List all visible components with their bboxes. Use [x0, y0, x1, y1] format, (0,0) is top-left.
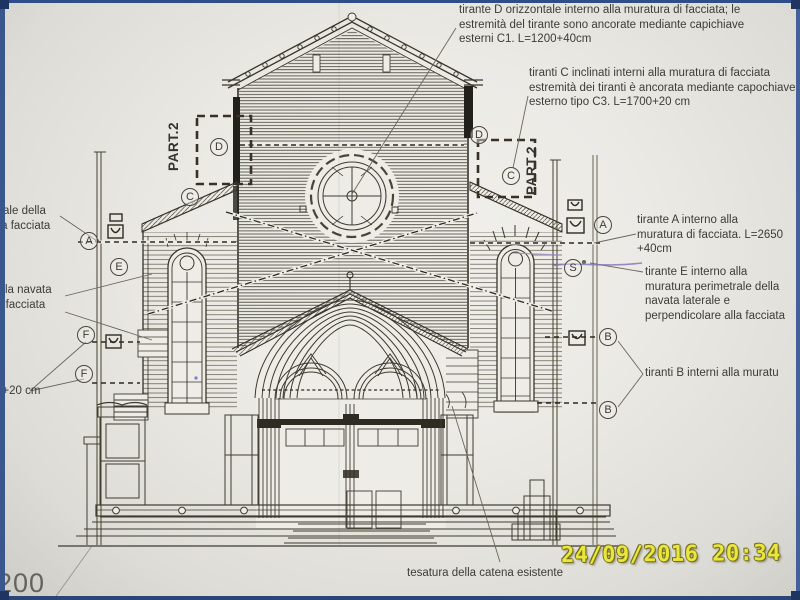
- part2-label-right: PART.2: [524, 146, 539, 195]
- marker-b-lower: B: [599, 401, 617, 419]
- marker-f-lower: F: [75, 365, 93, 383]
- marker-a-left: A: [80, 232, 98, 250]
- annotation-tesatura: tesatura della catena esistente: [407, 566, 563, 581]
- annotation-tirante-a: tirante A interno alla muratura di facci…: [637, 213, 783, 257]
- marker-d-right: D: [470, 126, 488, 144]
- photo-of-technical-drawing: { "photo": { "date_stamp": "24/09/2016 2…: [0, 0, 800, 600]
- photo-corner: [0, 591, 9, 600]
- marker-e-left: E: [110, 258, 128, 276]
- marker-c-right: C: [502, 167, 520, 185]
- paper-fold-crease: [338, 0, 340, 545]
- marker-a-right: A: [594, 216, 612, 234]
- annotation-tiranti-c: tiranti C inclinati interni alla muratur…: [529, 66, 796, 110]
- left-lancet-window: [165, 232, 209, 414]
- marker-c-left: C: [181, 188, 199, 206]
- annotation-tirante-e: tirante E interno alla muratura perimetr…: [645, 265, 785, 323]
- part2-label-left: PART.2: [166, 122, 181, 171]
- annotation-left-cut-3: 0+20 cm: [0, 384, 40, 399]
- photo-corner: [791, 591, 800, 600]
- marker-s-right: S: [564, 259, 582, 277]
- camera-date-stamp: 24/09/2016 20:34: [561, 541, 781, 568]
- photo-corner: [0, 0, 9, 9]
- annotation-left-cut-1: trale della lla facciata: [0, 204, 50, 233]
- marker-d-left: D: [210, 138, 228, 156]
- marker-f-upper: F: [77, 326, 95, 344]
- marker-b-upper: B: [599, 328, 617, 346]
- annotation-tiranti-b: tiranti B interni alla muratu: [645, 366, 779, 381]
- annotation-left-cut-2: ella navata a facciata: [0, 283, 52, 312]
- photo-corner: [791, 0, 800, 9]
- annotation-tirante-d: tirante D orizzontale interno alla murat…: [459, 3, 744, 47]
